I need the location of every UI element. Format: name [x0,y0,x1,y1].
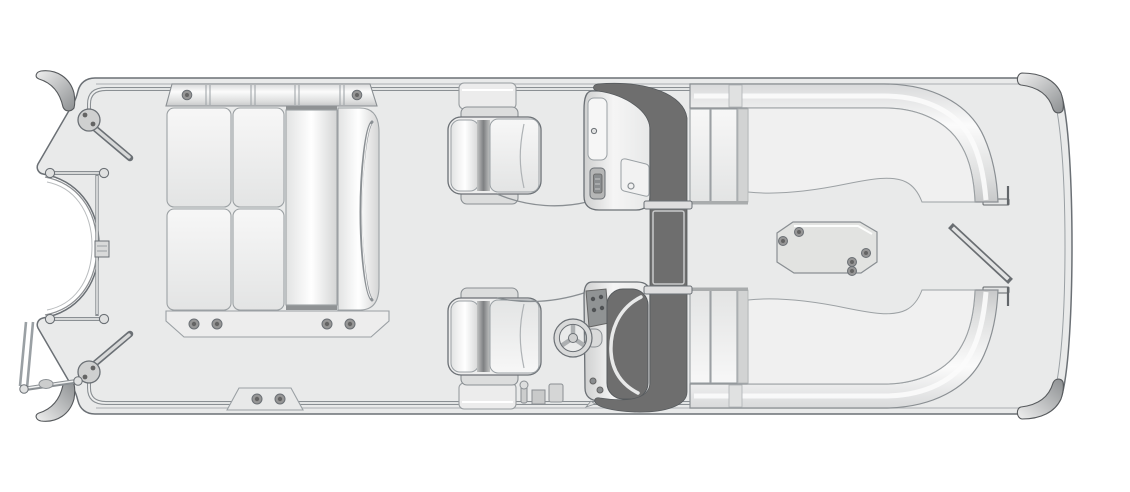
ladder-foot [39,380,53,389]
floorplan-svg [0,0,1130,492]
aft-lounge [166,84,389,337]
switch-dot [597,387,603,393]
latch-pin-head [520,381,528,389]
chair-seat [490,119,539,192]
aft-seat-cushion [167,108,231,207]
aft-seat-cushion [167,209,231,310]
corner-bumper-left [36,71,75,111]
rail-cap [45,168,54,177]
gauge-dot [591,297,595,301]
hinge-pin [91,122,96,127]
pontoon-floorplan-canvas [0,0,1130,492]
chaise-cushion-outer [338,108,379,310]
latch-block [549,384,563,402]
aft-seat-cushion [233,209,284,310]
bow-lounge-end-cushion [690,109,710,202]
rail-cap [99,168,108,177]
bow-pedestal-table [777,222,877,276]
bow-lounge-shadow-edge [690,201,748,205]
stern-gate-hinge [78,109,100,131]
gauge-dot [592,308,596,312]
gauge-dot [599,295,603,299]
table-top [777,222,877,273]
console-storage-door [588,98,607,160]
wheel-hub [569,334,578,343]
bow-lounge-end-cushion [711,109,737,202]
door-knob [591,128,596,133]
chair-backrest [451,120,479,191]
switch-dot [590,378,596,384]
windshield-door-frame-bottom [644,286,692,294]
steering-wheel-icon [554,319,592,357]
captain-chair [448,107,541,204]
fence-gate-block [459,83,516,109]
cutout-rim-inner [47,182,92,310]
backrest-divider-block [729,85,742,107]
latch-bracket [532,390,545,404]
bow-lounge-divider [738,109,748,202]
motor-mount-bracket [95,241,109,257]
aft-backrest-strip [166,84,377,106]
tow-plate [227,388,303,410]
chaise-cushion-inner [286,110,337,305]
console-access-panel [621,159,649,196]
gauge-dot [600,306,604,310]
hinge-pin [83,113,88,118]
aft-seat-cushion [233,108,284,207]
chair-back-crease [477,120,490,191]
windshield-door-frame-top [644,201,692,209]
gauge-panel [586,289,609,327]
